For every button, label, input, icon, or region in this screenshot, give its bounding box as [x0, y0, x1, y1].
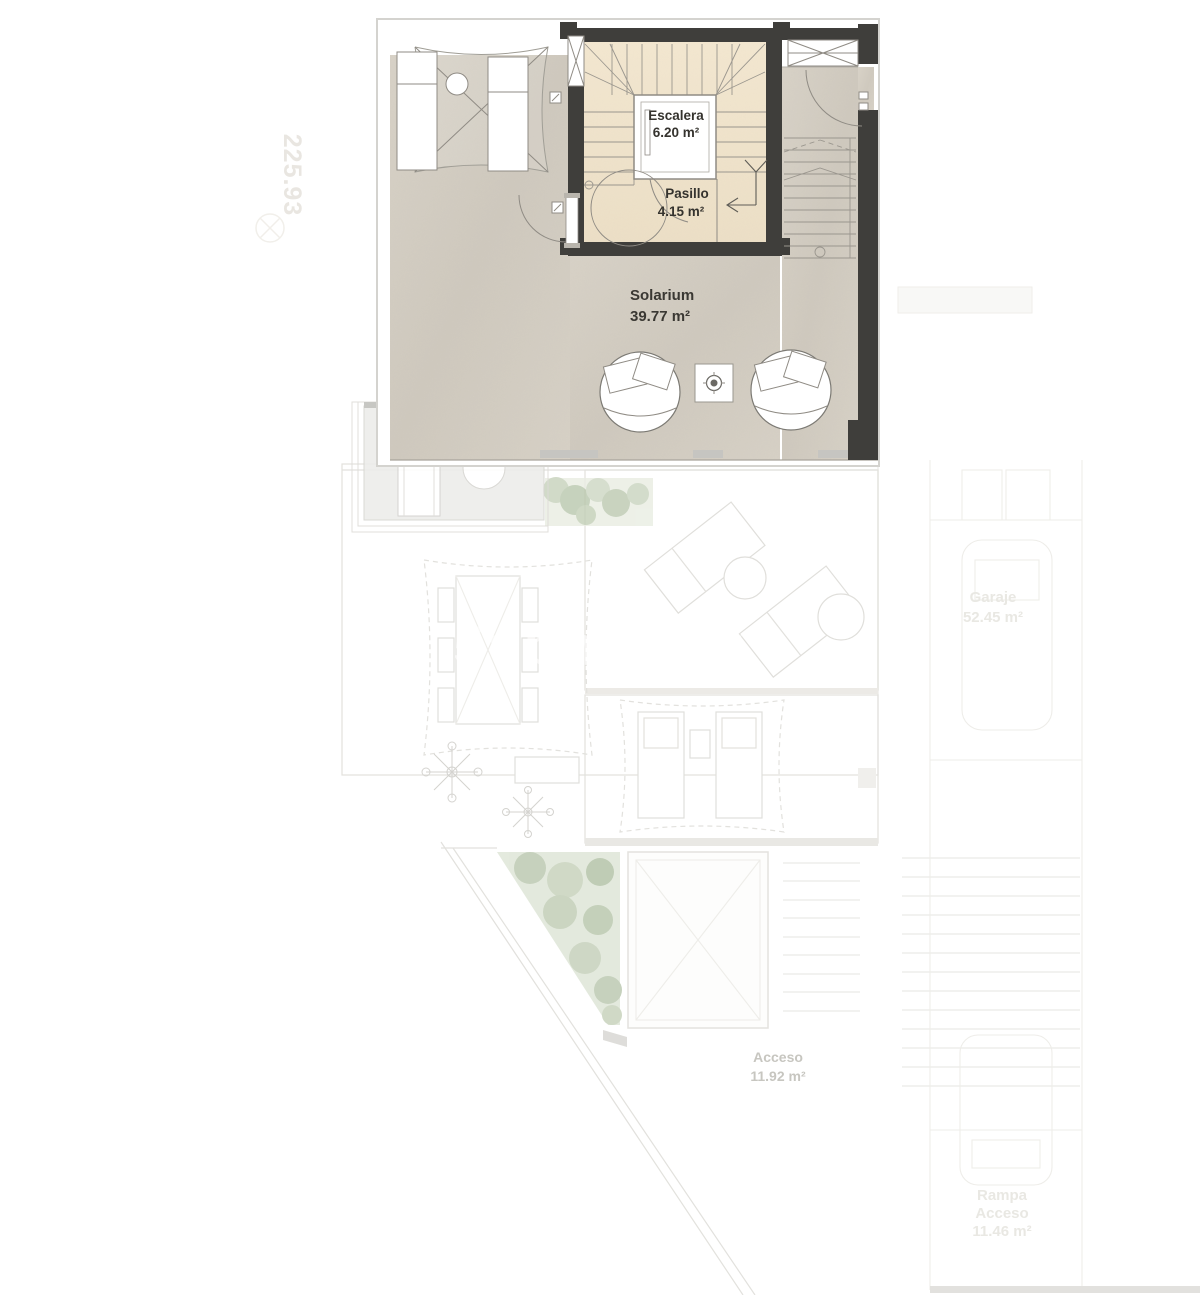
solarium-label: Solarium — [630, 287, 694, 304]
access-stairs — [783, 858, 1080, 1086]
solarium-area: 39.77 m² — [630, 308, 690, 325]
pasillo-area: 4.15 m² — [658, 204, 705, 219]
garaje-label: Garaje — [970, 589, 1017, 606]
pool — [628, 852, 768, 1028]
round-daybed-2 — [751, 350, 831, 430]
sunbeds — [620, 700, 876, 832]
rampa-line2: Acceso — [975, 1205, 1028, 1222]
tree-icons — [422, 742, 554, 838]
small-round-table — [446, 73, 468, 95]
side-mark-text: 225.93 — [278, 134, 306, 216]
watermark-text: 5vbhh1hk — [453, 614, 746, 677]
acceso-label: Acceso — [753, 1049, 803, 1065]
planter-greenery — [543, 477, 653, 526]
pasillo-label: Pasillo — [665, 186, 709, 201]
garage-strip — [898, 287, 1200, 1293]
vent-window — [788, 40, 858, 66]
stairwell-window — [568, 36, 584, 86]
solarium-level: Escalera 6.20 m² Pasillo 4.15 m² — [377, 19, 879, 466]
fire-table — [695, 364, 733, 402]
side-table-2 — [818, 594, 864, 640]
floorplan-drawing: Acceso 11.92 m² Garaje 52.45 m² Rampa Ac… — [0, 0, 1200, 1295]
car-outline-bottom — [960, 1035, 1052, 1185]
round-daybed-1 — [600, 352, 680, 432]
acceso-area: 11.92 m² — [750, 1068, 806, 1084]
hedge-triangle — [497, 852, 627, 1047]
side-mark-group: 225.93 — [256, 134, 306, 242]
garaje-area: 52.45 m² — [963, 609, 1023, 626]
escalera-label: Escalera — [648, 108, 704, 123]
side-table-1 — [724, 557, 766, 599]
escalera-area: 6.20 m² — [653, 125, 700, 140]
rampa-line1: Rampa — [977, 1187, 1028, 1204]
dining-table-set — [438, 576, 579, 783]
floorplan-canvas: Acceso 11.92 m² Garaje 52.45 m² Rampa Ac… — [0, 0, 1200, 1295]
rampa-area: 11.46 m² — [972, 1223, 1031, 1240]
